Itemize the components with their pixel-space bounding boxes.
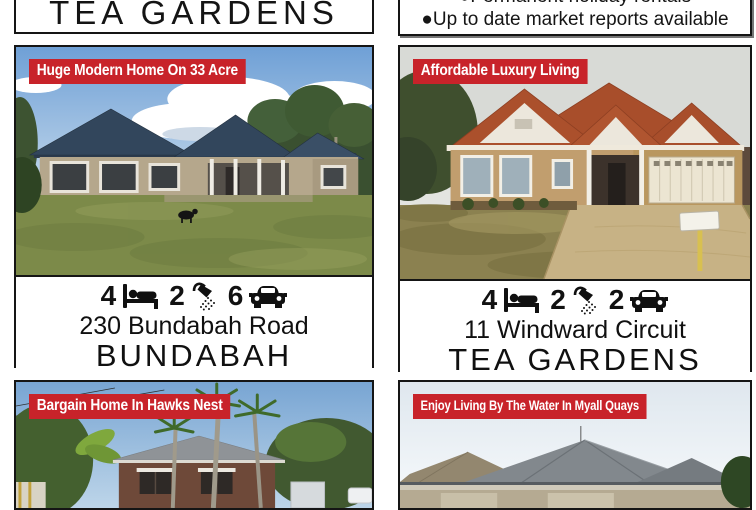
shower-icon (191, 281, 219, 311)
headline-box-tea-gardens: TEA GARDENS (14, 0, 374, 34)
listing-photo-hawks-nest: Bargain Home In Hawks Nest (16, 382, 372, 508)
listing-banner: Enjoy Living By The Water In Myall Quays (413, 394, 647, 419)
bullet-line-2: ●Up to date market reports available (421, 8, 728, 31)
listing-stats: 4 2 2 (482, 284, 669, 316)
bullet-icon: ● (459, 0, 470, 7)
cars-stat: 6 (228, 282, 288, 310)
services-bullet-lines: ●Permanent holiday rentals ●Up to date m… (400, 0, 750, 31)
car-icon (630, 286, 668, 314)
listing-banner: Huge Modern Home On 33 Acre (29, 59, 246, 84)
listing-address: 11 Windward Circuit (464, 316, 686, 344)
car-icon (249, 282, 287, 310)
listing-photo-windward: Affordable Luxury Living (400, 47, 750, 281)
bed-icon (503, 286, 541, 314)
services-bullet-box: ●Permanent holiday rentals ●Up to date m… (398, 0, 752, 36)
listing-suburb: TEA GARDENS (448, 344, 702, 376)
bullet-line-1: ●Permanent holiday rentals (459, 0, 691, 8)
headline-suburb: TEA GARDENS (16, 0, 372, 30)
real-estate-flyer-page: { "colors":{"banner_bg":"#c8232a","banne… (0, 0, 756, 496)
bed-icon (122, 282, 160, 310)
listing-banner: Bargain Home In Hawks Nest (29, 394, 230, 419)
listing-stats: 4 2 6 (101, 280, 288, 312)
garage-door (649, 157, 735, 203)
listing-card-hawks-nest: Bargain Home In Hawks Nest (14, 380, 374, 510)
listing-card-bundabah: Huge Modern Home On 33 Acre 4 2 6 (14, 45, 374, 368)
listing-info: 4 2 6 230 Bundabah Road BUNDABAH (16, 277, 372, 372)
bullet-icon: ● (421, 9, 432, 30)
beds-stat: 4 (482, 286, 542, 314)
listing-card-myall-quays: Enjoy Living By The Water In Myall Quays (398, 380, 752, 510)
beds-stat: 4 (101, 282, 161, 310)
baths-stat: 2 (169, 281, 219, 311)
shower-icon (572, 285, 600, 315)
cars-stat: 2 (609, 286, 669, 314)
listing-banner: Affordable Luxury Living (413, 59, 587, 84)
listing-photo-bundabah: Huge Modern Home On 33 Acre (16, 47, 372, 277)
listing-card-windward: Affordable Luxury Living 4 2 2 (398, 45, 752, 372)
listing-address: 230 Bundabah Road (79, 312, 308, 340)
listing-suburb: BUNDABAH (96, 340, 292, 372)
listing-info: 4 2 2 11 Windward Circuit TEA GARDENS (400, 281, 750, 376)
baths-stat: 2 (550, 285, 600, 315)
listing-photo-myall-quays: Enjoy Living By The Water In Myall Quays (400, 382, 750, 508)
